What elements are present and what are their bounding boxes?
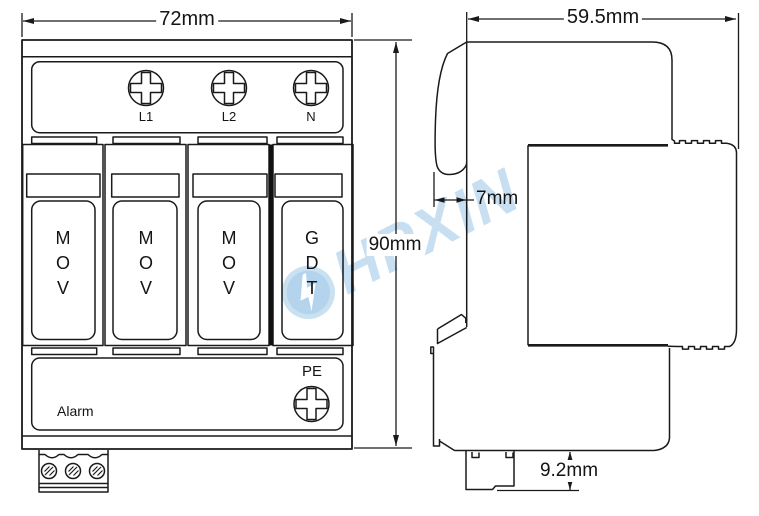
module-label-mov-1: MOV [54, 226, 72, 301]
terminal-screw-l1-icon [129, 71, 164, 106]
rail-depth-dimension-label: 9.2mm [538, 460, 600, 482]
alarm-terminal-block [39, 450, 108, 492]
terminal-label-l2: L2 [222, 109, 236, 124]
front-height-dimension-label: 90mm [367, 234, 424, 256]
dim-59-5mm [467, 12, 739, 149]
terminal-screw-l2-icon [212, 71, 247, 106]
pe-label: PE [302, 363, 322, 380]
terminal-label-l1: L1 [139, 109, 153, 124]
din-lip-dimension-label: 7mm [476, 188, 518, 210]
drawing-linework [0, 0, 759, 516]
module-bottom-tabs [32, 348, 343, 355]
module-label-gdt: GDT [303, 226, 321, 301]
front-width-dimension-label: 72mm [156, 8, 218, 31]
alarm-panel [32, 358, 343, 430]
dim-7mm [434, 172, 474, 207]
module-label-mov-3: MOV [220, 226, 238, 301]
module-top-tabs [32, 137, 343, 144]
spd-dimension-drawing: HPXIN 72mm 59.5mm 90mm 7mm 9.2mm L1 L2 N… [0, 0, 759, 516]
terminal-screw-n-icon [294, 71, 329, 106]
side-view-outline [431, 42, 737, 490]
terminal-label-n: N [306, 109, 315, 124]
side-width-dimension-label: 59.5mm [564, 6, 642, 29]
alarm-label: Alarm [57, 403, 94, 419]
module-label-mov-2: MOV [137, 226, 155, 301]
